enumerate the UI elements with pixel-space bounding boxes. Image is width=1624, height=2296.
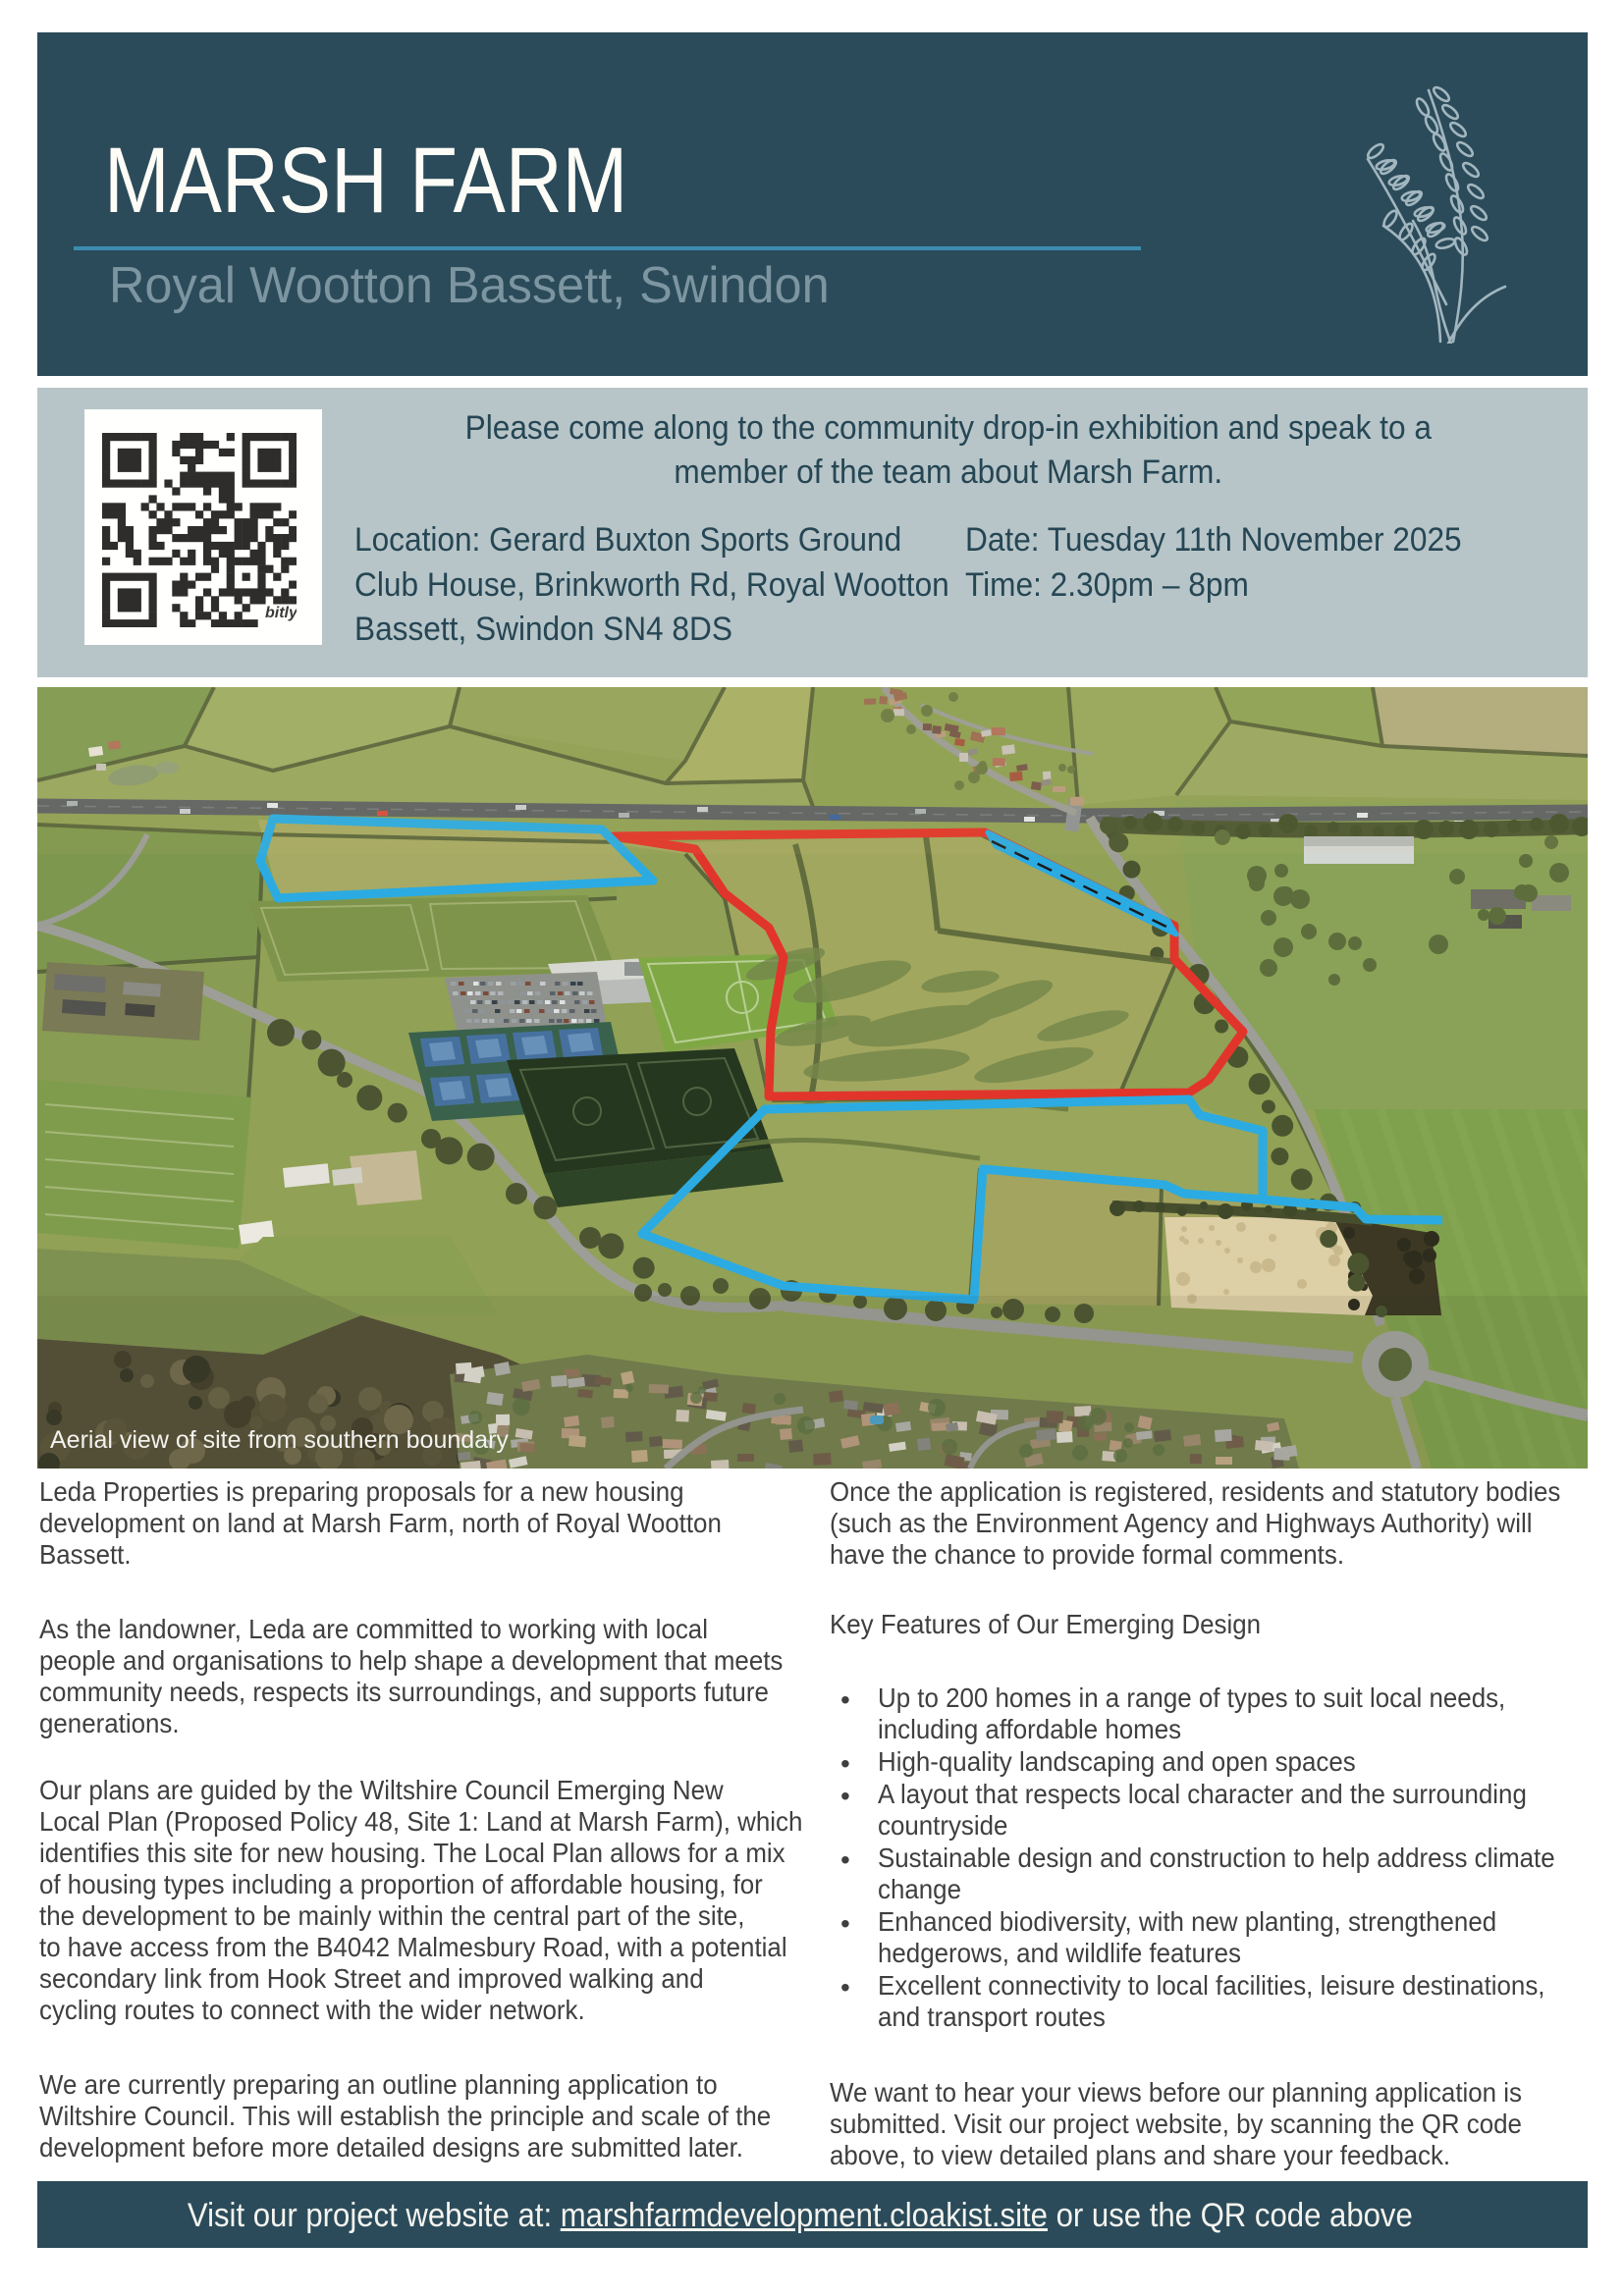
svg-text:Aerial view of site from south: Aerial view of site from southern bounda… [50, 1426, 509, 1454]
svg-text:bitly: bitly [265, 605, 297, 621]
